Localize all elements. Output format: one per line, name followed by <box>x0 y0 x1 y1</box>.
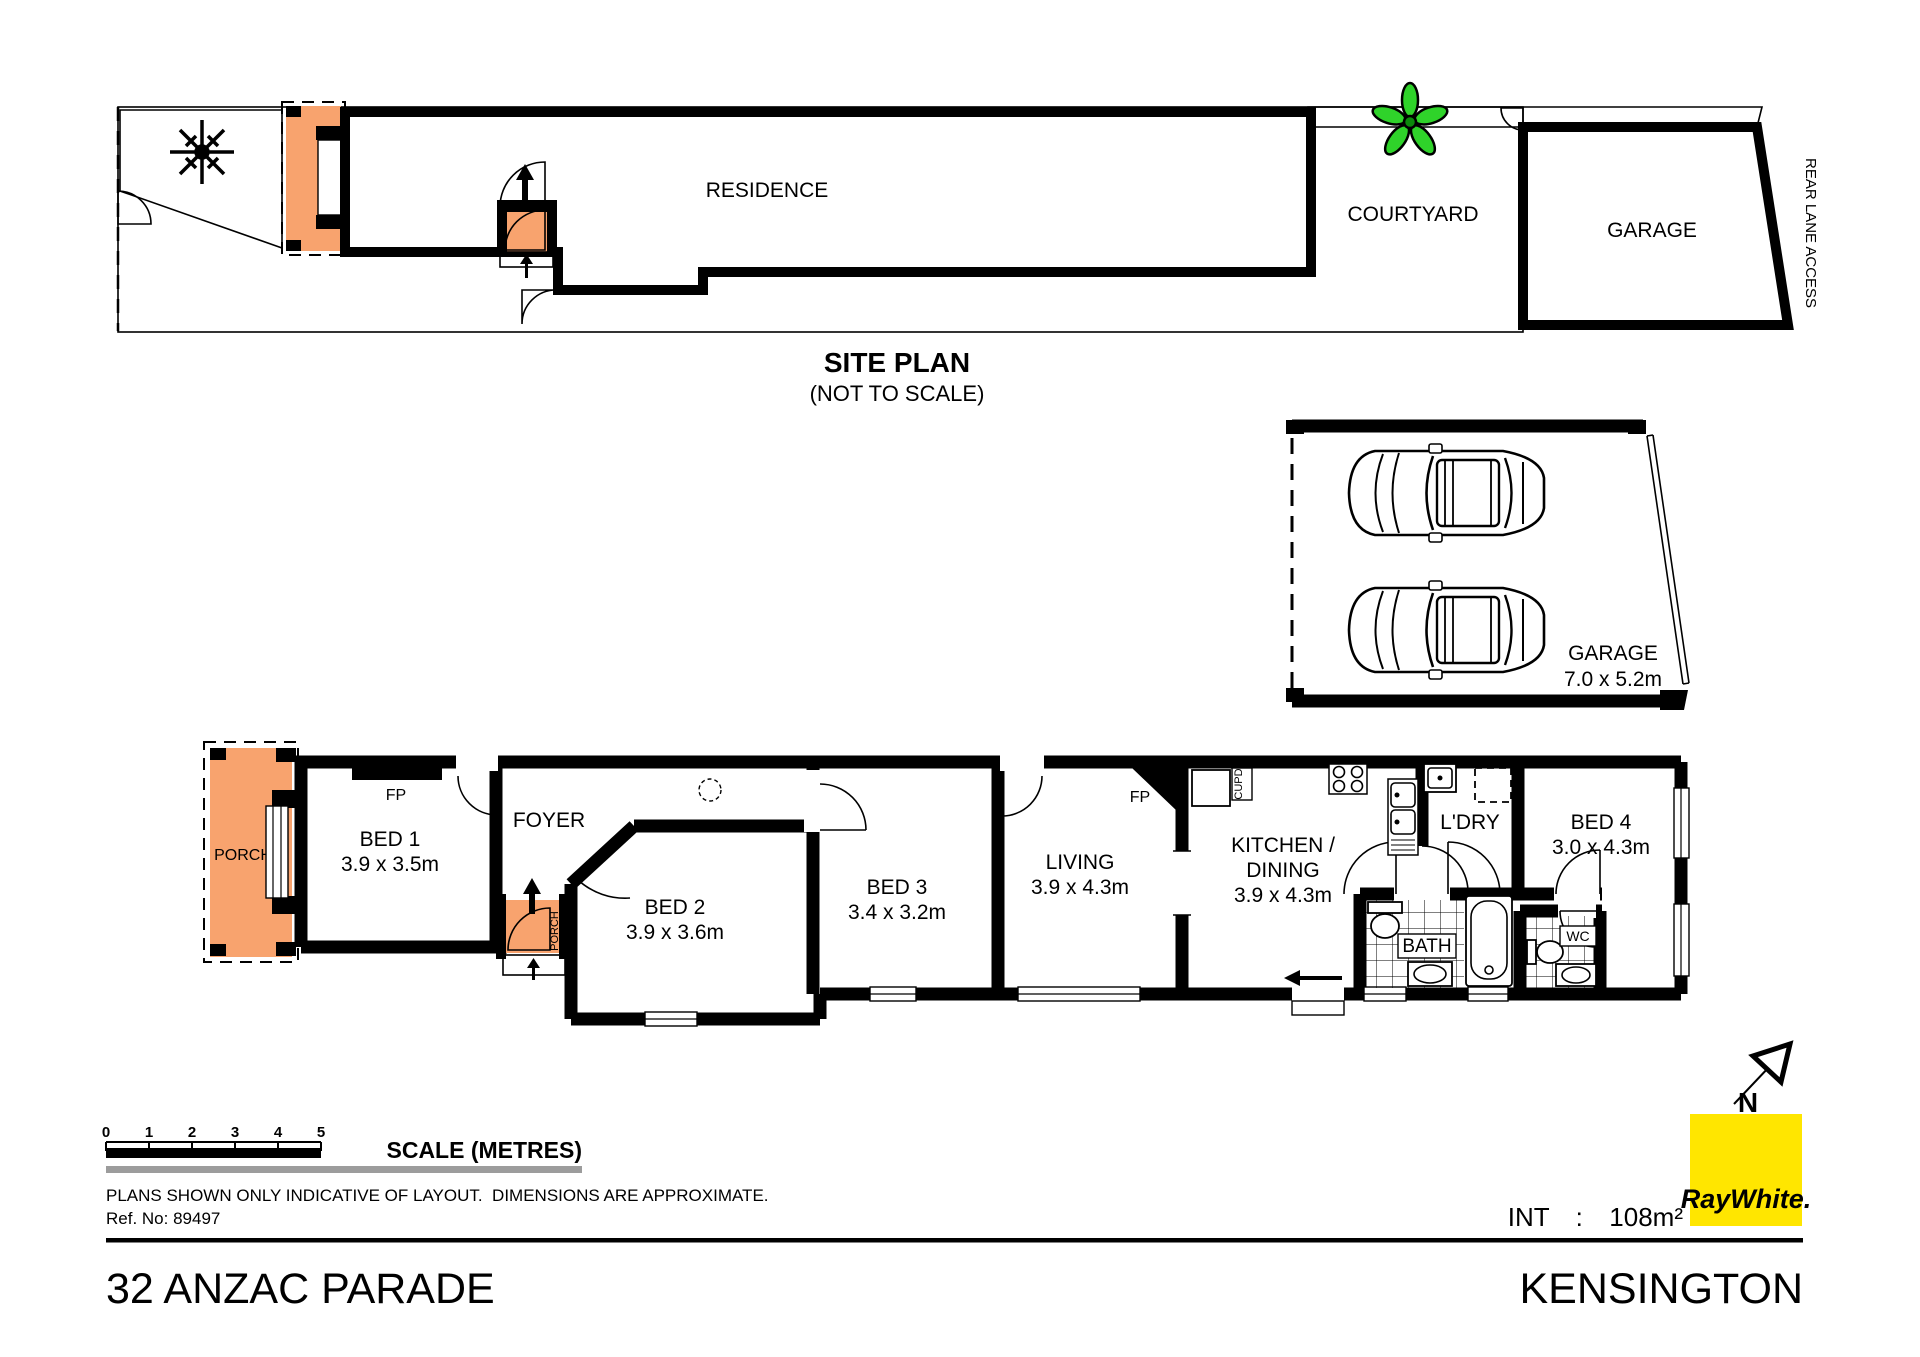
scale-tick-3: 3 <box>231 1124 239 1141</box>
kitchen-dims: 3.9 x 4.3m <box>1234 884 1332 907</box>
scale-tick-4: 4 <box>274 1124 283 1141</box>
garage-plan: GARAGE 7.0 x 5.2m <box>1286 420 1689 710</box>
toilet-icon-bath <box>1368 902 1402 938</box>
garage-plan-label: GARAGE <box>1568 642 1658 665</box>
bathtub-icon <box>1466 896 1512 986</box>
footer-rule <box>106 1238 1803 1243</box>
site-plan-title: SITE PLAN <box>824 347 970 378</box>
bed1-label: BED 1 <box>360 828 421 851</box>
wc-label: WC <box>1566 928 1589 944</box>
bed1-dims: 3.9 x 3.5m <box>341 853 439 876</box>
living-label: LIVING <box>1046 851 1115 874</box>
bed4-label: BED 4 <box>1571 811 1632 834</box>
bed3-label: BED 3 <box>867 876 928 899</box>
living-dims: 3.9 x 4.3m <box>1031 876 1129 899</box>
site-gate-arc <box>118 191 151 224</box>
gap-bed4-door <box>1554 885 1600 903</box>
fp2-label: FP <box>1130 789 1150 806</box>
plant-icon <box>1370 83 1449 158</box>
garage-plan-dims: 7.0 x 5.2m <box>1564 668 1662 691</box>
floor-plan: PORCH <box>204 742 1689 1026</box>
step-arrow-icon-2 <box>527 958 540 980</box>
gap-side-door <box>1000 753 1044 771</box>
scale-label: SCALE (METRES) <box>387 1137 583 1163</box>
site-porch <box>282 102 345 255</box>
basin-icon-wc <box>1556 964 1596 986</box>
oven-icon <box>1192 770 1230 806</box>
reference-text: Ref. No: 89497 <box>106 1209 220 1228</box>
bed3-dims: 3.4 x 3.2m <box>848 901 946 924</box>
cupd-label: CUPD <box>1233 768 1245 799</box>
porch-label: PORCH <box>214 847 272 864</box>
site-side-gate-arc <box>522 290 556 324</box>
floorplan-page: RESIDENCE COURTYARD GARAGE REAR LANE ACC… <box>0 0 1920 1357</box>
scale-bar: 0 1 2 3 4 5 SCALE (METRES) <box>102 1124 582 1173</box>
car-icon-2 <box>1349 581 1544 679</box>
porch-window <box>266 806 288 898</box>
gap-bed3-door <box>804 770 822 832</box>
kitchen-sink-icon <box>1388 779 1418 855</box>
site-plan: RESIDENCE COURTYARD GARAGE REAR LANE ACC… <box>118 83 1819 332</box>
bed2-dims: 3.9 x 3.6m <box>626 921 724 944</box>
gap-rear-door <box>1292 986 1344 1002</box>
car-icon-1 <box>1349 444 1544 542</box>
scale-tick-2: 2 <box>188 1124 196 1141</box>
ldry-label: L'DRY <box>1440 811 1500 834</box>
gap-front-door <box>456 753 498 771</box>
disclaimer-text: PLANS SHOWN ONLY INDICATIVE OF LAYOUT. D… <box>106 1186 769 1205</box>
suburb-label: KENSINGTON <box>1519 1265 1803 1313</box>
bed4-dims: 3.0 x 4.3m <box>1552 836 1650 859</box>
scale-tick-5: 5 <box>317 1124 325 1141</box>
scale-tick-0: 0 <box>102 1124 110 1141</box>
fireplace-bed1 <box>352 768 442 780</box>
foyer-label: FOYER <box>513 809 585 832</box>
internal-area-label: INT : 108m² <box>1508 1202 1684 1232</box>
scale-bar-fill <box>106 1148 321 1158</box>
rear-lane-label: REAR LANE ACCESS <box>1802 158 1819 308</box>
tree-icon <box>170 120 234 184</box>
bed2-label: BED 2 <box>645 896 706 919</box>
basin-icon-bath <box>1408 962 1452 986</box>
site-plan-subtitle: (NOT TO SCALE) <box>810 381 985 406</box>
cooktop-icon <box>1329 764 1367 794</box>
laundry-tub-icon <box>1424 764 1456 792</box>
north-arrow: N <box>1734 1044 1790 1118</box>
step-arrow-icon <box>520 254 533 278</box>
kitchen-label-1: KITCHEN / <box>1231 834 1335 857</box>
gap-kitchen-opening <box>1173 851 1191 915</box>
raywhite-logo: RayWhite. <box>1681 1114 1812 1226</box>
address-label: 32 ANZAC PARADE <box>106 1265 495 1313</box>
toilet-icon-wc <box>1527 940 1563 964</box>
scale-tick-1: 1 <box>145 1124 153 1141</box>
site-garage-label: GARAGE <box>1607 219 1697 242</box>
cupboard-icon: CUPD <box>1232 768 1252 800</box>
residence-label: RESIDENCE <box>706 179 829 202</box>
courtyard-label: COURTYARD <box>1347 203 1478 226</box>
logo-text: RayWhite. <box>1681 1184 1812 1214</box>
entry-porch-label: PORCH <box>549 911 561 951</box>
fp1-label: FP <box>386 787 406 804</box>
wc-room: WC <box>1526 916 1596 988</box>
bath-label: BATH <box>1402 936 1451 957</box>
scale-divider <box>106 1166 582 1173</box>
kitchen-label-2: DINING <box>1246 859 1320 882</box>
north-n-label: N <box>1738 1087 1758 1118</box>
bathroom: BATH <box>1366 896 1512 988</box>
